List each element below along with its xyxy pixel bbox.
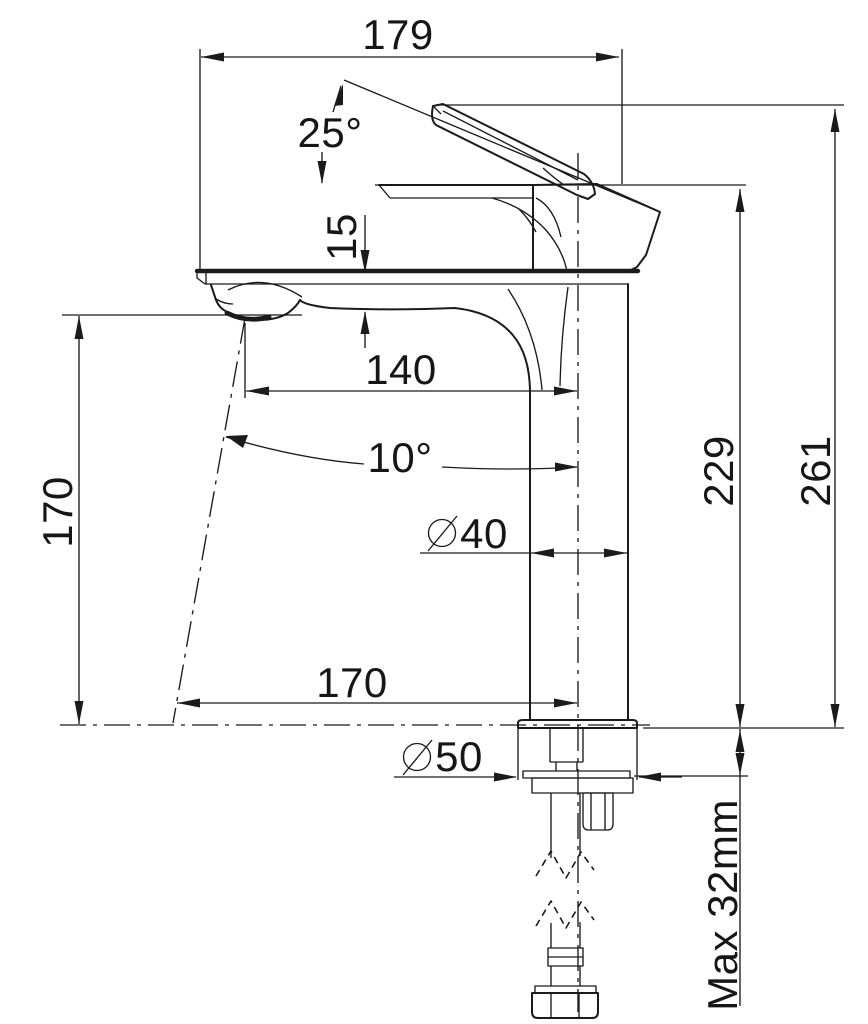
dim-text-261: 261	[792, 435, 839, 507]
diameter-symbol-slash	[403, 740, 432, 775]
arrow-up	[361, 311, 370, 334]
arrow-bottom	[75, 701, 84, 724]
stream-centerline	[173, 318, 245, 723]
arrow-right	[638, 773, 661, 782]
arrow-lower	[318, 161, 327, 184]
dim-text-179: 179	[362, 11, 434, 58]
dim-text-140: 140	[365, 346, 437, 393]
arrow-right	[554, 699, 577, 708]
hose-nut-flange	[535, 986, 596, 993]
hose-end-nut	[532, 993, 598, 1018]
arrow-right	[555, 463, 578, 472]
arrow-left	[177, 699, 200, 708]
fixing-stud-nut	[583, 793, 613, 830]
washer-thick	[532, 778, 633, 793]
dim-text-25deg: 25°	[297, 109, 362, 156]
dim-max-deck-thickness: Max 32mm	[634, 729, 748, 1011]
faucet-outline	[197, 80, 660, 1018]
arrow-top	[736, 189, 745, 212]
arrow-up	[736, 730, 745, 752]
dim-text-10deg: 10°	[367, 434, 432, 481]
hose-break-upper	[536, 851, 594, 878]
arrow-left	[246, 387, 269, 396]
dim-body-diameter: 40	[420, 510, 627, 558]
arrow-left	[226, 435, 248, 448]
arrow-left	[201, 53, 224, 62]
head-neck-curve-a	[536, 198, 561, 237]
arrow-right	[604, 549, 627, 558]
dim-text-50: 50	[435, 733, 483, 780]
dim-text-170-bottom: 170	[316, 659, 388, 706]
diameter-symbol-slash	[428, 516, 457, 551]
arrow-down	[736, 753, 745, 775]
arrow-top	[831, 109, 840, 132]
centerlines	[60, 153, 650, 1012]
dim-base-diameter: 50	[394, 729, 682, 782]
fixing-stud-facets	[591, 793, 605, 830]
dim-spout-reach: 140	[245, 323, 577, 398]
spout-sweep-curve	[492, 198, 567, 271]
outlet-left-edge	[211, 285, 227, 312]
technical-drawing-page: 179 25° 15 140 10° 4	[0, 0, 868, 1024]
body-column	[530, 284, 628, 719]
aerator-mouth	[227, 313, 269, 319]
arrow-right	[596, 53, 619, 62]
dim-stream-angle: 10°	[226, 434, 578, 481]
arrow-bottom	[736, 704, 745, 727]
mixer-head-outline	[533, 184, 660, 272]
lever-tip-facet	[433, 106, 441, 114]
spout-tip-bevel	[379, 185, 390, 198]
arrow-bottom	[831, 704, 840, 727]
arrow-top	[75, 316, 84, 339]
dim-text-15: 15	[318, 213, 365, 261]
hose-lower-section	[551, 966, 580, 986]
arrow-left	[531, 549, 554, 558]
supply-hose	[532, 793, 598, 1018]
hose-mid-section	[551, 922, 580, 948]
arc-left	[226, 437, 364, 464]
arrow-right	[554, 387, 577, 396]
dim-reach-at-base: 170	[177, 659, 577, 708]
hose-end-nut-facets	[551, 993, 579, 1018]
hose-upper-section	[551, 793, 580, 858]
arrow-upper	[334, 84, 343, 106]
spout-arm	[379, 185, 567, 271]
dim-outlet-height: 170	[34, 315, 302, 724]
dim-text-170-left: 170	[34, 476, 81, 548]
arrow-left	[494, 773, 517, 782]
dim-text-max32: Max 32mm	[699, 799, 746, 1011]
dim-overall-width: 179	[200, 11, 622, 272]
dim-text-229: 229	[695, 435, 742, 507]
column-sweep-right	[560, 287, 568, 386]
washer-thin	[523, 771, 630, 778]
technical-drawing-canvas: 179 25° 15 140 10° 4	[0, 0, 868, 1024]
column-sweep-left	[508, 289, 542, 390]
dim-text-40: 40	[460, 510, 508, 557]
hose-break-lower	[536, 901, 594, 928]
shank-collar	[556, 762, 577, 771]
dim-spout-drop: 15	[318, 213, 370, 348]
dim-handle-angle: 25°	[297, 84, 746, 185]
handle-angle-ray	[344, 80, 660, 212]
